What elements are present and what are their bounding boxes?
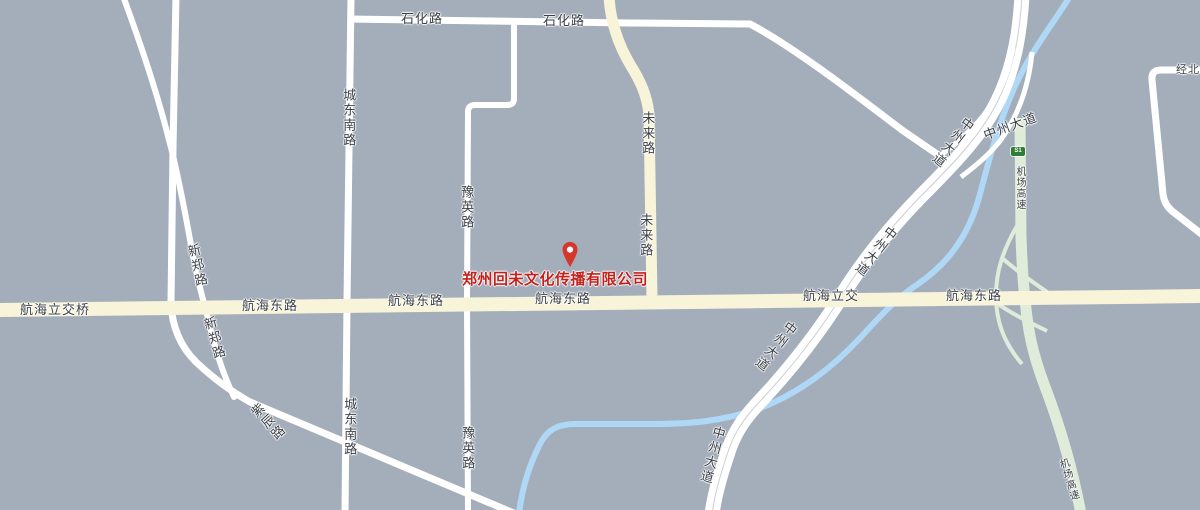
map-roads-layer xyxy=(0,0,1200,510)
road-label-weilai-2: 未来路 xyxy=(638,213,652,258)
road-label-hanghai-lijiaoqiao: 航海立交桥 xyxy=(20,303,90,317)
road-label-jichang-gaosu-1: 机场高速 xyxy=(1014,166,1025,210)
map-canvas[interactable]: 石化路 石化路 城东南路 城东南路 豫英路 豫英路 未来路 未来路 新郑路 新郑… xyxy=(0,0,1200,510)
road-label-weilai-1: 未来路 xyxy=(640,111,654,156)
road-jingbei xyxy=(1152,70,1200,236)
road-label-chengdongnan-1: 城东南路 xyxy=(341,88,355,148)
road-label-yuying-1: 豫英路 xyxy=(459,185,473,230)
expressway-s1-shield: S1 xyxy=(1011,147,1025,156)
road-label-shihua-1: 石化路 xyxy=(401,12,443,26)
road-label-chengdongnan-2: 城东南路 xyxy=(342,397,356,457)
road-label-hanghai-lijiao: 航海立交 xyxy=(803,289,859,303)
road-label-hanghai-donglu-3: 航海东路 xyxy=(535,292,591,306)
road-label-hanghai-donglu-1: 航海东路 xyxy=(242,299,298,313)
poi-company-label[interactable]: 郑州回未文化传播有限公司 xyxy=(462,268,648,289)
road-label-hanghai-donglu-2: 航海东路 xyxy=(388,294,444,308)
road-label-yuying-2: 豫英路 xyxy=(460,426,474,471)
road-hanghai-donglu xyxy=(0,296,1200,310)
road-label-jingbei: 经北 xyxy=(1176,64,1200,76)
road-label-hanghai-donglu-4: 航海东路 xyxy=(946,289,1002,303)
road-airport-expressway xyxy=(1020,118,1081,510)
road-label-shihua-2: 石化路 xyxy=(543,14,585,28)
river xyxy=(519,0,1070,510)
